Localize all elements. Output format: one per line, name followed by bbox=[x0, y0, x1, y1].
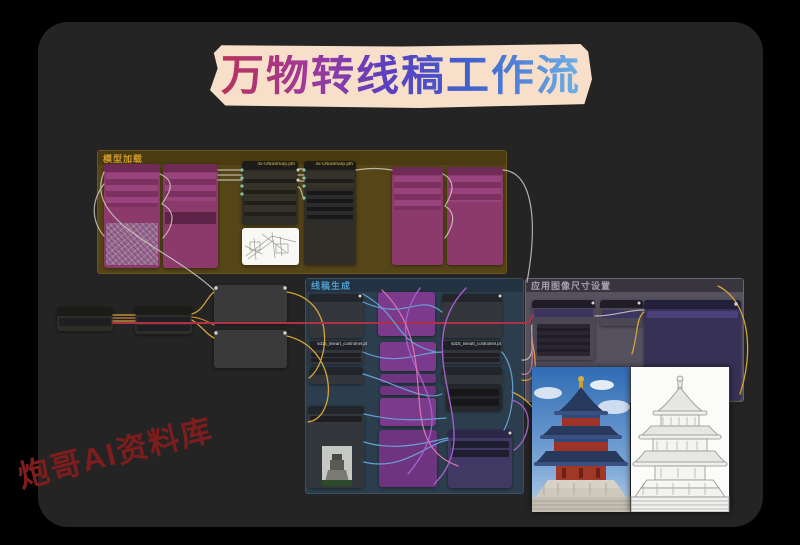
node-controlnet-left-row2[interactable] bbox=[311, 358, 361, 362]
group-model-loaders-header[interactable]: 模型加载 bbox=[98, 151, 506, 165]
node-sampler-indigo-row[interactable] bbox=[451, 441, 509, 448]
node-upscale-model-2[interactable]: 4x-UltraSharp.pth bbox=[304, 161, 356, 265]
node-loader-a-titlebar[interactable] bbox=[104, 164, 160, 172]
node-apply-1-inputrow[interactable] bbox=[534, 309, 593, 317]
node-gen-left-1[interactable] bbox=[309, 294, 363, 338]
node-gen-right-3-row[interactable] bbox=[449, 389, 499, 396]
node-controlnet-left-row[interactable] bbox=[311, 353, 361, 357]
group-model-loaders-title: 模型加载 bbox=[103, 152, 143, 165]
node-gen-right-1-titlebar[interactable] bbox=[442, 294, 502, 302]
node-input-small-2-titlebar[interactable] bbox=[135, 306, 192, 315]
node-upscale-model-1[interactable]: 4x-UltraSharp.pth bbox=[242, 161, 298, 225]
node-load-image-titlebar[interactable] bbox=[308, 406, 364, 414]
node-controlnet-left-namerow[interactable]: sd15_lineart_controlnet.pt bbox=[310, 341, 362, 350]
node-loader-a[interactable] bbox=[104, 164, 160, 268]
title-banner: 万物转线稿工作流 bbox=[210, 44, 592, 108]
node-controlnet-right-row2[interactable] bbox=[444, 358, 500, 362]
node-load-image-row[interactable] bbox=[310, 416, 362, 422]
node-apply-1[interactable] bbox=[532, 300, 595, 360]
node-input-small-1-row[interactable] bbox=[59, 318, 111, 326]
node-controlnet-right[interactable]: sd15_lineart_controlnet.pt bbox=[442, 340, 502, 364]
workflow-title: 万物转线稿工作流 bbox=[221, 55, 581, 98]
node-purple-1[interactable] bbox=[378, 292, 435, 336]
node-loader-b-row[interactable] bbox=[165, 212, 216, 224]
group-apply-settings-header[interactable]: 应用图像尺寸设置 bbox=[526, 279, 743, 292]
node-loader-b-widgets[interactable] bbox=[165, 173, 216, 201]
node-loader-a-preview-image bbox=[106, 223, 158, 265]
node-load-image[interactable] bbox=[308, 406, 364, 488]
node-gen-left-2-titlebar[interactable] bbox=[309, 367, 363, 375]
node-save-image-titlebar[interactable] bbox=[644, 300, 741, 309]
node-loader-c[interactable] bbox=[392, 167, 443, 265]
node-mid-relay-1[interactable] bbox=[214, 285, 287, 323]
node-upscale-model-2-widgets[interactable] bbox=[306, 172, 354, 188]
node-upscale-model-2-rows[interactable] bbox=[307, 191, 353, 223]
node-purple-3[interactable] bbox=[380, 374, 436, 383]
node-controlnet-right-label: sd15_lineart_controlnet.pt bbox=[451, 342, 493, 346]
node-purple-2[interactable] bbox=[380, 342, 436, 371]
group-lineart-generate-header[interactable]: 线稿生成 bbox=[306, 279, 523, 292]
node-loader-c-titlebar[interactable] bbox=[392, 167, 443, 175]
node-sampler-indigo-row2[interactable] bbox=[451, 450, 509, 457]
node-controlnet-right-namerow[interactable]: sd15_lineart_controlnet.pt bbox=[443, 341, 501, 350]
node-gen-left-1-titlebar[interactable] bbox=[309, 294, 363, 302]
temple-photo-art bbox=[532, 367, 630, 512]
node-loader-c-widgets[interactable] bbox=[394, 176, 441, 210]
node-loader-b-titlebar[interactable] bbox=[163, 164, 218, 172]
node-gen-right-2[interactable] bbox=[442, 367, 502, 384]
group-apply-settings-title: 应用图像尺寸设置 bbox=[531, 279, 611, 292]
node-apply-2-titlebar[interactable] bbox=[600, 300, 643, 308]
node-apply-1-titlebar[interactable] bbox=[532, 300, 595, 308]
node-upscale-model-2-title: 4x-UltraSharp.pth bbox=[315, 162, 353, 167]
node-gen-right-3[interactable] bbox=[446, 385, 502, 411]
node-apply-2-row[interactable] bbox=[602, 310, 641, 318]
node-input-small-2-row[interactable] bbox=[137, 317, 190, 323]
node-sampler-indigo[interactable] bbox=[448, 430, 512, 488]
node-controlnet-left[interactable]: sd15_lineart_controlnet.pt bbox=[309, 340, 363, 364]
node-loader-d[interactable] bbox=[447, 167, 503, 265]
node-save-image-row[interactable] bbox=[647, 311, 738, 318]
temple-lineart-art bbox=[630, 367, 730, 512]
node-controlnet-left-label: sd15_lineart_controlnet.pt bbox=[317, 342, 354, 346]
group-lineart-generate-title: 线稿生成 bbox=[311, 279, 351, 292]
node-loader-a-widgets[interactable] bbox=[106, 173, 158, 207]
node-gen-right-3-row2[interactable] bbox=[449, 399, 499, 406]
node-controlnet-right-row[interactable] bbox=[444, 353, 500, 357]
thumbnail-tower bbox=[322, 446, 352, 486]
node-apply-1-rows[interactable] bbox=[537, 324, 590, 356]
node-upscale-model-1-widgets[interactable] bbox=[244, 172, 296, 216]
node-upscale-model-1-title: 4x-UltraSharp.pth bbox=[257, 162, 295, 167]
node-mid-relay-2[interactable] bbox=[214, 330, 287, 368]
temple-photo-image bbox=[532, 367, 630, 512]
node-loader-d-widgets[interactable] bbox=[449, 176, 501, 202]
node-sampler-indigo-titlebar[interactable] bbox=[448, 430, 512, 438]
node-purple-4[interactable] bbox=[380, 386, 436, 395]
node-upscale-model-2-titlebar[interactable]: 4x-UltraSharp.pth bbox=[304, 161, 356, 170]
node-gen-right-2-titlebar[interactable] bbox=[442, 367, 502, 375]
node-gen-right-1[interactable] bbox=[442, 294, 502, 338]
node-loader-d-titlebar[interactable] bbox=[447, 167, 503, 175]
node-apply-2[interactable] bbox=[600, 300, 643, 326]
temple-lineart-image bbox=[630, 367, 730, 512]
lineart-preview-small bbox=[242, 228, 299, 265]
node-gen-left-2[interactable] bbox=[309, 367, 363, 384]
node-input-small-1[interactable] bbox=[57, 307, 113, 331]
node-load-image-thumbnail bbox=[322, 446, 352, 486]
node-loader-b[interactable] bbox=[163, 164, 218, 268]
node-input-small-2-row2[interactable] bbox=[137, 325, 190, 331]
node-purple-6[interactable] bbox=[379, 430, 437, 487]
sketch-lines bbox=[242, 228, 299, 265]
screenshot-stage: 模型加载 4x-UltraSharp.pth bbox=[0, 0, 800, 545]
node-input-small-2[interactable] bbox=[135, 306, 192, 334]
node-input-small-1-titlebar[interactable] bbox=[57, 307, 113, 316]
node-upscale-model-1-titlebar[interactable]: 4x-UltraSharp.pth bbox=[242, 161, 298, 170]
node-purple-5[interactable] bbox=[380, 398, 436, 426]
